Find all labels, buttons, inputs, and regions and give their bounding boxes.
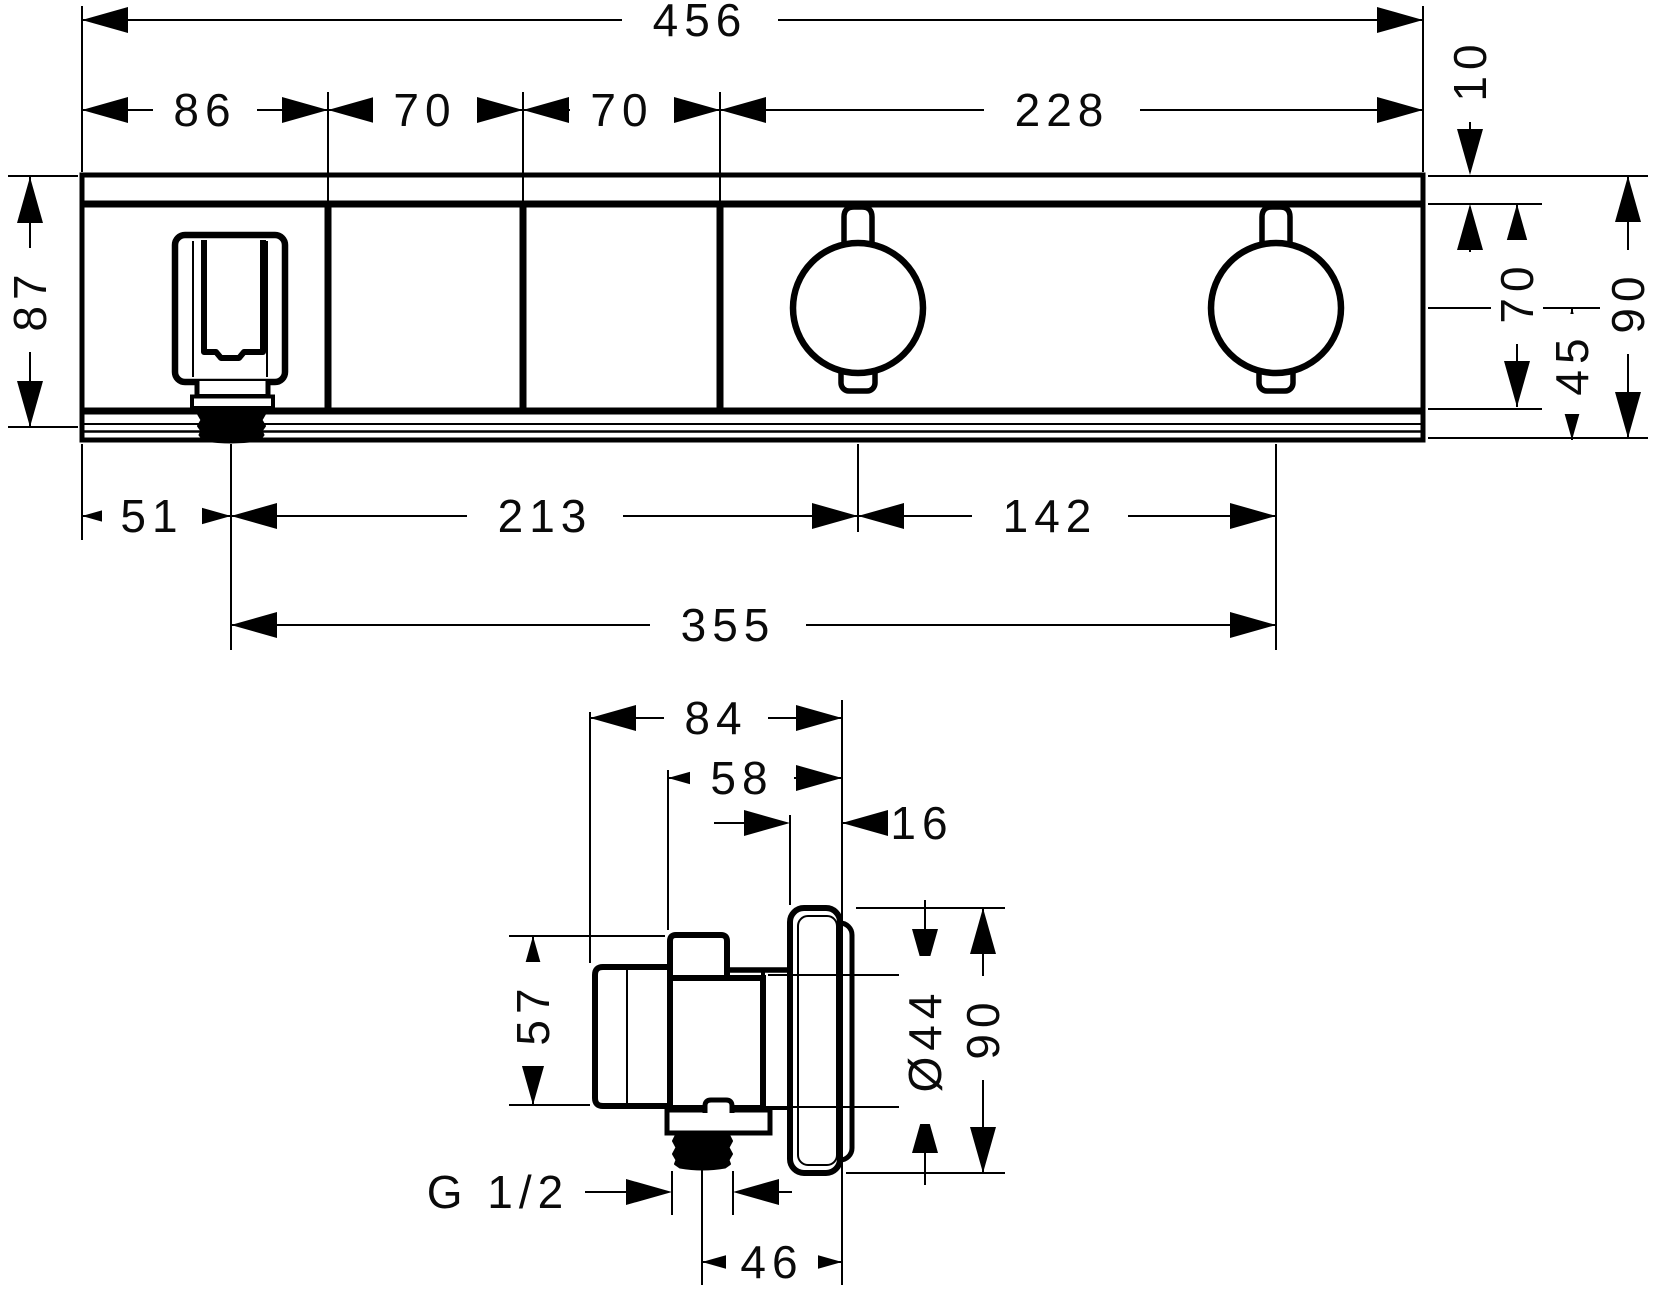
dim-overall-depth-label: 84 <box>684 692 747 744</box>
dim-section-holder-label: 86 <box>173 84 236 136</box>
dim-face-height-label: 70 <box>1491 260 1543 323</box>
knob-left-dial <box>793 243 923 373</box>
dim-section-blank-left-label: 70 <box>393 84 456 136</box>
dim-outlet-to-knob1-label: 213 <box>498 490 593 542</box>
dim-plate-height-label: 90 <box>957 996 1009 1059</box>
dim-top-trim-label: 10 <box>1444 38 1496 101</box>
outlet-thread-front <box>198 408 265 443</box>
dim-body-height-label: 57 <box>507 982 559 1045</box>
dim-body-depth-label: 58 <box>710 752 773 804</box>
front-view: 456 86 70 70 228 10 87 70 45 90 51 213 1… <box>4 0 1653 651</box>
drawing-canvas: 456 86 70 70 228 10 87 70 45 90 51 213 1… <box>0 0 1653 1292</box>
dim-body-height-left-label: 87 <box>4 268 56 331</box>
outlet-thread-side <box>673 1135 732 1170</box>
dim-axis-to-base-label: 45 <box>1546 332 1598 395</box>
body-neck <box>763 970 790 1108</box>
body-left-block <box>595 967 670 1106</box>
dim-plate-thickness-label: 16 <box>890 797 953 849</box>
dim-outlet-thread-label: G 1/2 <box>427 1166 570 1218</box>
dim-overall-width-label: 456 <box>653 0 748 46</box>
outlet-flange <box>667 1110 770 1133</box>
cartridge-housing <box>670 978 763 1108</box>
dim-edge-to-outlet-label: 51 <box>120 490 183 542</box>
body-top-step <box>670 935 727 978</box>
side-valve-body <box>595 935 791 1170</box>
dim-section-blank-right-label: 70 <box>590 84 653 136</box>
flange-tab <box>705 1100 732 1113</box>
side-view: 84 58 16 57 Ø44 90 G 1/2 46 <box>427 692 1009 1288</box>
dim-cartridge-diameter-label: Ø44 <box>899 988 951 1093</box>
dim-section-controls-label: 228 <box>1015 84 1110 136</box>
dim-overall-height-label: 90 <box>1602 270 1653 333</box>
knob-right-dial <box>1211 243 1341 373</box>
dim-knob1-to-knob2-label: 142 <box>1003 490 1098 542</box>
technical-drawing: 456 86 70 70 228 10 87 70 45 90 51 213 1… <box>0 0 1653 1292</box>
dim-outlet-to-knob2-label: 355 <box>681 599 776 651</box>
dim-axis-to-wall-label: 46 <box>740 1236 803 1288</box>
